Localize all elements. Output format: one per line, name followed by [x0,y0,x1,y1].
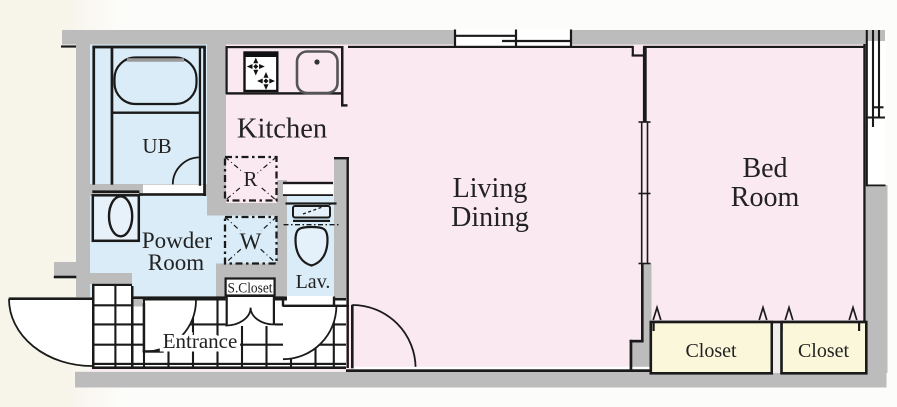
svg-text:Closet: Closet [798,340,850,362]
svg-text:Bed: Bed [742,153,787,184]
svg-text:Entrance: Entrance [163,329,238,353]
svg-text:Lav.: Lav. [296,271,331,293]
svg-text:R: R [243,167,257,191]
svg-text:Closet: Closet [685,340,737,362]
svg-text:Living: Living [453,173,528,204]
svg-text:Room: Room [148,250,204,275]
svg-text:Room: Room [731,182,800,213]
svg-text:Kitchen: Kitchen [237,114,327,145]
svg-text:Dining: Dining [451,202,529,233]
svg-text:W: W [240,229,262,254]
svg-text:UB: UB [142,134,171,158]
svg-text:S.Closet: S.Closet [228,281,273,297]
